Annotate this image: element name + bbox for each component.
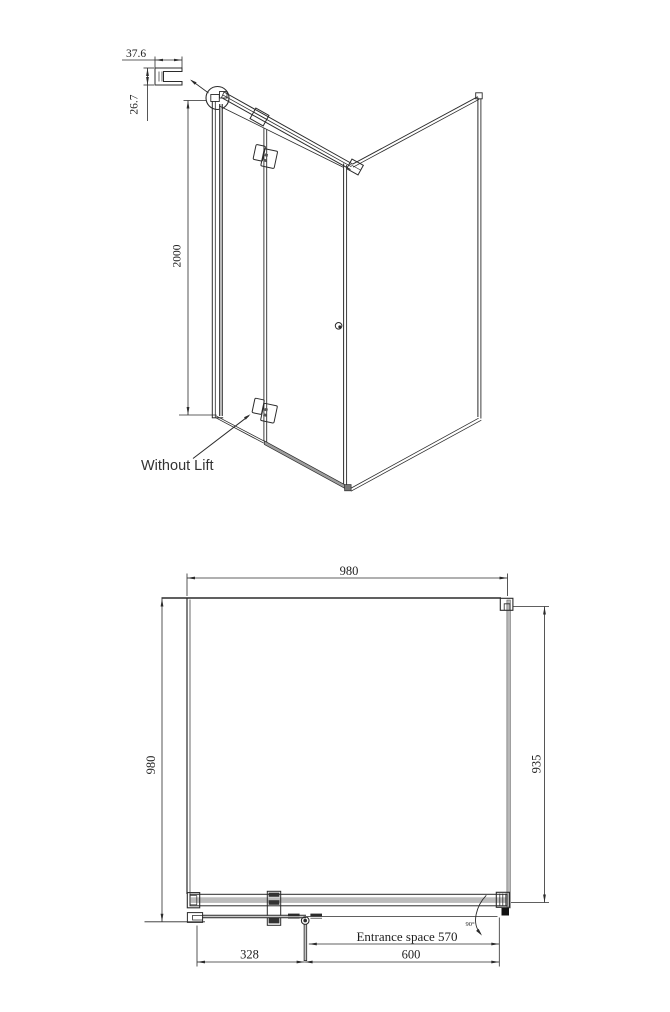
corner-post-plan [502,908,510,916]
side-panel-glass [507,600,510,908]
wall-profile-left [211,92,227,418]
without-lift-leader-line [193,416,249,459]
profile-detail: 37.6 26.7 [122,48,209,121]
door-bottom-seal [264,441,347,490]
side-panel-plan [500,598,513,915]
without-lift-annotation: Without Lift [141,414,251,474]
fixed-panel-label: 328 [240,948,259,962]
swing-arrow-icon [476,929,482,936]
bar-glass-clamp [250,108,269,126]
side-panel-label: 935 [530,755,544,774]
profile-height-label: 26.7 [129,94,141,114]
door-knob [335,323,342,330]
technical-drawing-page: 37.6 26.7 [0,0,670,1012]
front-glass-top-edge [219,106,343,168]
entrance-label: Entrance space 570 [356,929,457,944]
bar-corner-bracket [347,159,364,175]
without-lift-label: Without Lift [141,458,214,474]
corner-post [344,164,347,489]
plan-walls [162,598,502,894]
plan-view: 980 980 935 [144,564,549,967]
plan-width-dimension: 980 [187,564,508,596]
side-panel-dimension: 935 [511,607,549,903]
perspective-view: 37.6 26.7 [122,48,482,491]
plan-depth-label: 980 [144,756,158,775]
bottom-hinge [252,398,278,423]
plan-width-label: 980 [340,564,359,578]
door-width-label: 600 [402,948,421,962]
profile-height-dimension: 26.7 [129,68,155,121]
wall-profile-plan-left [187,913,202,923]
enclosure-3d [211,92,482,492]
door-hinge-edge [264,128,267,442]
corner-foot [345,485,352,491]
bottom-rails [216,416,351,491]
entrance-dimension: Entrance space 570 [309,929,500,946]
profile-width-dimension: 37.6 [122,48,182,68]
fixed-panel-dimension: 328 [197,926,305,967]
door-open-90 [304,924,307,960]
plan-depth-dimension: 980 [144,598,205,922]
height-label: 2000 [172,244,184,267]
side-panel-3d [350,93,482,491]
shower-enclosure-drawing: 37.6 26.7 [0,0,670,1012]
height-dimension-2000: 2000 [172,101,217,416]
top-hinge [253,144,278,168]
corner-wall-profile [500,598,513,610]
top-support-bar [222,92,364,175]
swing-angle-label: 90° [466,921,476,928]
bar-mid-bracket [267,891,280,925]
profile-width-label: 37.6 [126,48,146,60]
support-bar-plan [187,891,509,925]
